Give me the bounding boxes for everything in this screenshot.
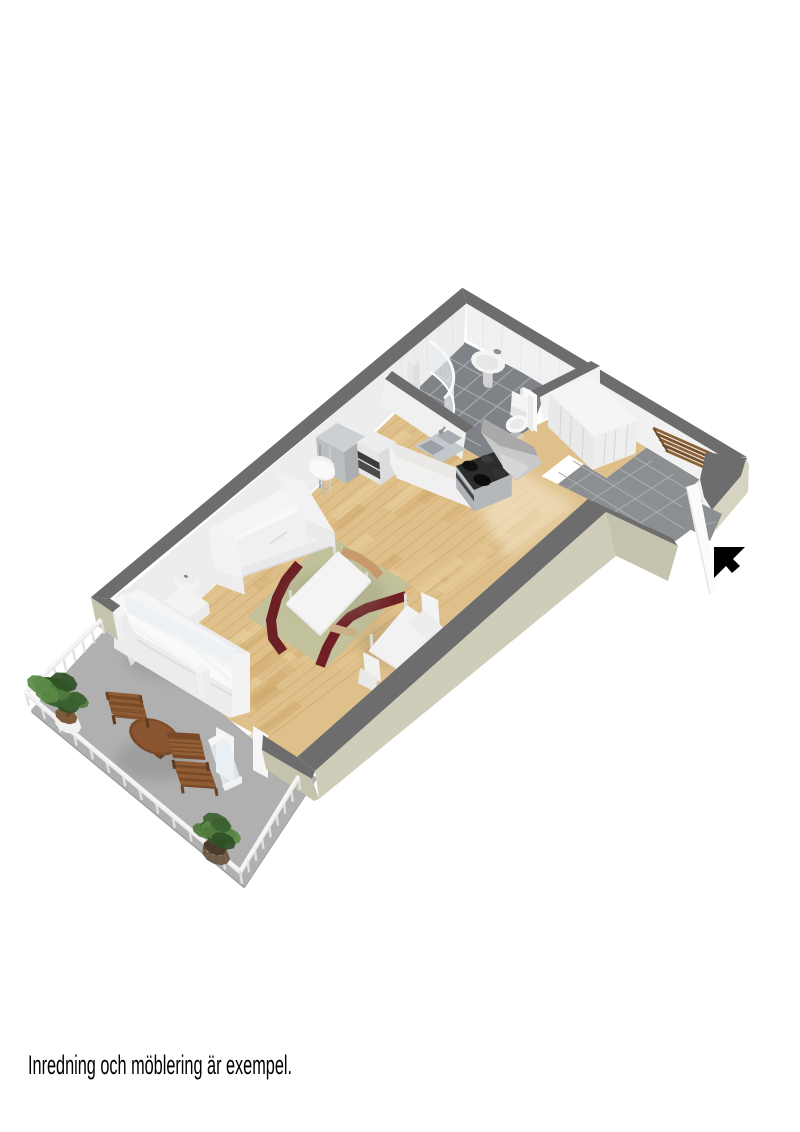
- svg-text:Inredning och möblering är exe: Inredning och möblering är exempel.: [28, 1050, 292, 1080]
